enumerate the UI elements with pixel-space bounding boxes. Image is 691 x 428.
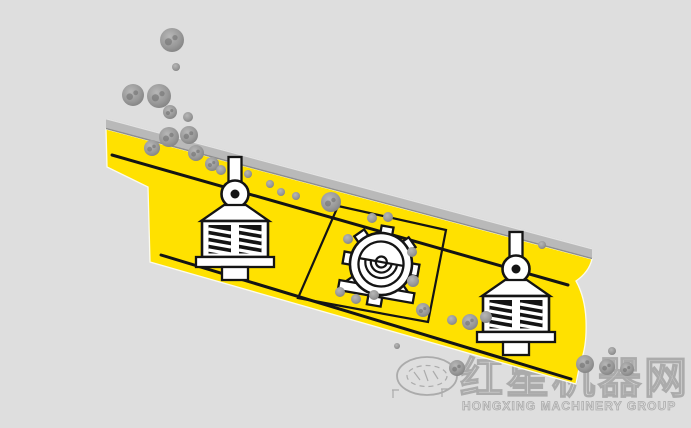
watermark-english-text: HONGXING MACHINERY GROUP	[462, 399, 676, 413]
rock-particle	[188, 145, 204, 161]
rock-particle	[144, 140, 160, 156]
rock-speckle	[423, 307, 426, 310]
rock-particle	[394, 343, 400, 349]
rock-speckle	[208, 163, 212, 167]
rock-particle	[608, 347, 616, 355]
rock-particle	[335, 287, 345, 297]
rock-speckle	[196, 150, 200, 154]
rock-particle	[383, 212, 393, 222]
rock-particle	[369, 290, 379, 300]
rock-particle	[407, 247, 417, 257]
rock-speckle	[331, 198, 335, 202]
rock-speckle	[147, 147, 152, 152]
rock-speckle	[184, 134, 189, 139]
rock-speckle	[189, 131, 193, 135]
rock-particle	[160, 28, 184, 52]
rock-particle	[351, 294, 361, 304]
rock-speckle	[152, 145, 156, 149]
rock-speckle	[165, 38, 172, 45]
rock-particle	[163, 105, 177, 119]
rock-particle	[407, 275, 419, 287]
rock-particle	[172, 63, 180, 71]
rock-speckle	[457, 365, 461, 369]
rock-particle	[244, 170, 252, 178]
rock-speckle	[602, 366, 607, 371]
rock-speckle	[623, 368, 627, 372]
rock-particle	[292, 192, 300, 200]
rock-particle	[620, 362, 634, 376]
rock-speckle	[452, 367, 457, 372]
rock-particle	[216, 165, 226, 175]
rock-speckle	[585, 360, 589, 364]
rock-particle	[416, 303, 430, 317]
rock-particle	[343, 234, 353, 244]
rock-particle	[480, 311, 492, 323]
rock-particle	[367, 213, 377, 223]
rock-particle	[462, 314, 478, 330]
rock-speckle	[159, 91, 164, 96]
rock-particle	[277, 188, 285, 196]
rock-speckle	[580, 363, 585, 368]
rock-speckle	[169, 133, 173, 137]
rock-particle	[449, 360, 465, 376]
rock-speckle	[607, 364, 611, 368]
rock-speckle	[419, 309, 423, 313]
rock-particle	[576, 355, 594, 373]
rock-speckle	[465, 321, 470, 326]
rock-particle	[147, 84, 171, 108]
rock-particle	[122, 84, 144, 106]
rock-speckle	[133, 90, 138, 95]
rock-speckle	[172, 35, 177, 40]
rock-particle	[321, 192, 341, 212]
rock-speckle	[166, 111, 170, 115]
rock-speckle	[163, 136, 169, 142]
rock-speckle	[325, 201, 331, 207]
rock-particle	[266, 180, 274, 188]
rock-speckle	[470, 319, 474, 323]
rock-particle	[599, 359, 615, 375]
rock-speckle	[212, 161, 215, 164]
rock-particle	[183, 112, 193, 122]
rock-particle	[180, 126, 198, 144]
rock-speckle	[191, 152, 196, 157]
rock-speckle	[627, 366, 630, 369]
rock-speckle	[126, 93, 133, 100]
rock-speckle	[152, 94, 159, 101]
rock-particle	[447, 315, 457, 325]
rock-particle	[159, 127, 179, 147]
vibrating-screen-diagram: 红星机器网 HONGXING MACHINERY GROUP	[0, 0, 691, 428]
rock-speckle	[170, 109, 173, 112]
rock-particle	[538, 241, 546, 249]
